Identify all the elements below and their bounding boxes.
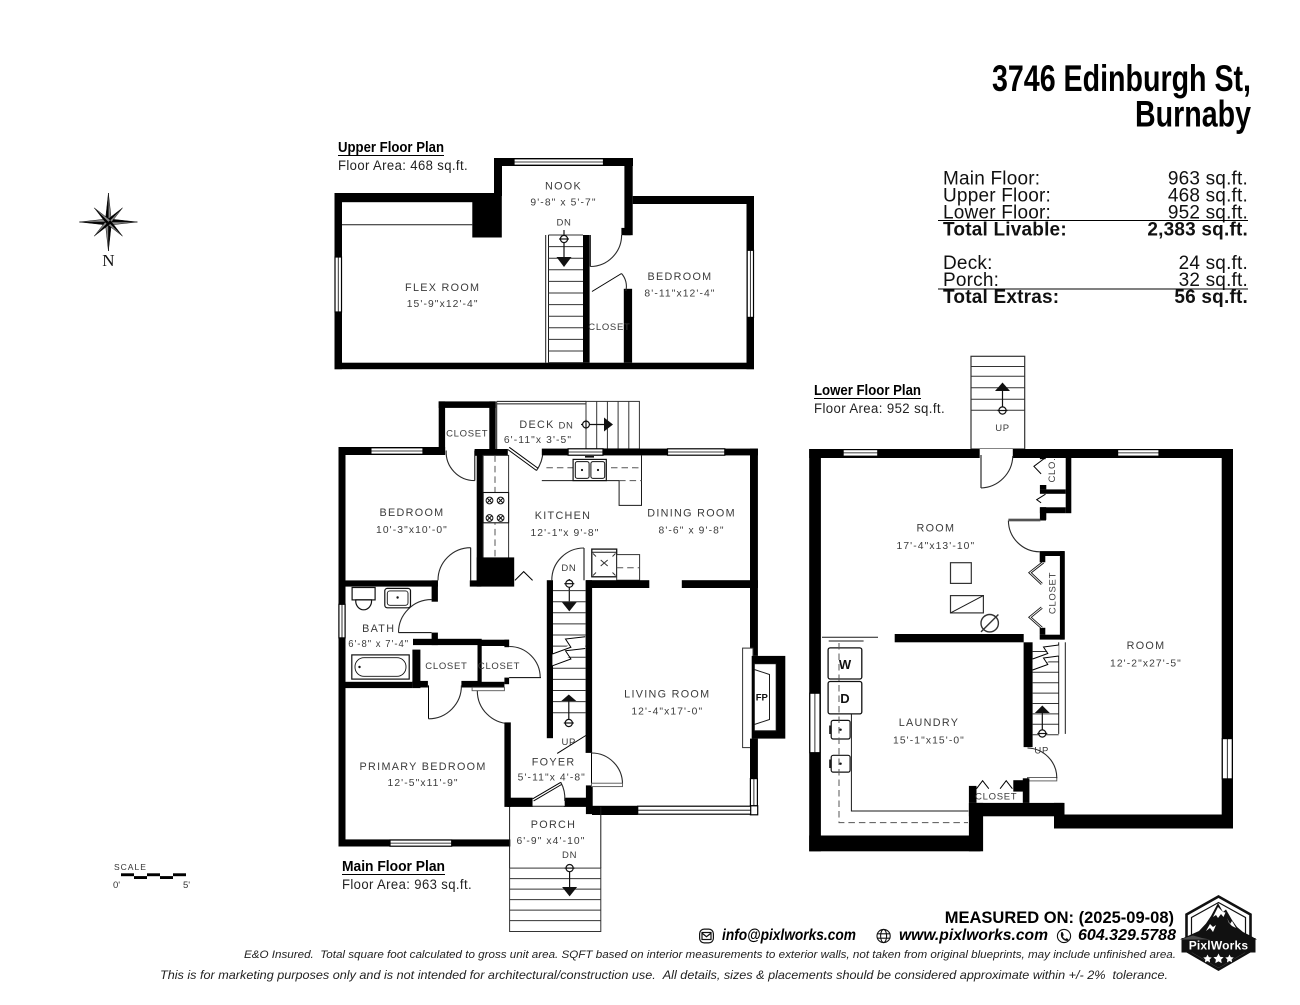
svg-text:Burnaby: Burnaby	[1135, 94, 1251, 135]
svg-text:UP: UP	[995, 423, 1010, 434]
svg-text:Lower Floor Plan: Lower Floor Plan	[814, 382, 921, 399]
svg-text:6'-11"x 3'-5": 6'-11"x 3'-5"	[504, 435, 572, 446]
svg-text:12'-4"x17'-0": 12'-4"x17'-0"	[631, 707, 703, 718]
svg-text:CLO.: CLO.	[1047, 458, 1058, 483]
svg-text:www.pixlworks.com: www.pixlworks.com	[899, 927, 1048, 944]
svg-text:SCALE: SCALE	[114, 862, 147, 872]
svg-text:Floor Area: 963 sq.ft.: Floor Area: 963 sq.ft.	[342, 877, 472, 892]
svg-text:Upper Floor Plan: Upper Floor Plan	[338, 139, 444, 156]
svg-text:BEDROOM: BEDROOM	[380, 507, 445, 519]
svg-text:FOYER: FOYER	[532, 757, 576, 769]
svg-text:12'-5"x11'-9": 12'-5"x11'-9"	[388, 778, 459, 789]
svg-text:8'-11"x12'-4": 8'-11"x12'-4"	[644, 289, 715, 300]
svg-text:604.329.5788: 604.329.5788	[1078, 927, 1176, 944]
svg-text:CLOSET: CLOSET	[1048, 572, 1059, 614]
svg-text:0': 0'	[113, 880, 120, 891]
svg-text:LIVING ROOM: LIVING ROOM	[624, 689, 710, 701]
svg-text:info@pixlworks.com: info@pixlworks.com	[722, 927, 856, 944]
svg-text:BATH: BATH	[362, 623, 395, 635]
svg-text:D: D	[840, 691, 849, 706]
svg-text:6'-9" x4'-10": 6'-9" x4'-10"	[516, 836, 585, 847]
svg-text:Total Extras:: Total Extras:	[943, 287, 1059, 308]
svg-text:Floor Area: 468 sq.ft.: Floor Area: 468 sq.ft.	[338, 158, 468, 173]
svg-text:ROOM: ROOM	[917, 523, 956, 535]
svg-text:DN: DN	[562, 850, 577, 861]
svg-text:Floor Area: 952 sq.ft.: Floor Area: 952 sq.ft.	[814, 401, 945, 416]
svg-text:10'-3"x10'-0": 10'-3"x10'-0"	[376, 525, 448, 536]
svg-text:ROOM: ROOM	[1127, 640, 1166, 652]
svg-text:NOOK: NOOK	[545, 181, 582, 193]
svg-text:15'-1"x15'-0": 15'-1"x15'-0"	[893, 736, 965, 747]
svg-text:8'-6" x 9'-8": 8'-6" x 9'-8"	[659, 526, 725, 537]
svg-text:KITCHEN: KITCHEN	[535, 510, 592, 522]
svg-text:6'-8" x 7'-4": 6'-8" x 7'-4"	[348, 639, 409, 650]
svg-text:BEDROOM: BEDROOM	[648, 271, 713, 283]
svg-text:FLEX ROOM: FLEX ROOM	[405, 282, 480, 294]
svg-text:CLOSET: CLOSET	[425, 661, 467, 672]
svg-text:UP: UP	[1034, 746, 1049, 757]
svg-text:Total Livable:: Total Livable:	[943, 220, 1067, 241]
svg-text:12'-1"x 9'-8": 12'-1"x 9'-8"	[530, 528, 599, 539]
svg-text:5'-11"x 4'-8": 5'-11"x 4'-8"	[518, 773, 586, 784]
svg-text:PixlWorks: PixlWorks	[1189, 939, 1249, 953]
svg-text:FP: FP	[756, 693, 769, 704]
svg-text:W: W	[839, 657, 852, 672]
svg-text:CLOSET: CLOSET	[446, 429, 488, 440]
svg-text:PRIMARY BEDROOM: PRIMARY BEDROOM	[360, 761, 487, 773]
svg-text:5': 5'	[183, 880, 190, 891]
svg-text:DN: DN	[556, 218, 571, 229]
svg-text:E&O Insured. Total square foo: E&O Insured. Total square foot calculate…	[244, 949, 1176, 961]
svg-text:9'-8" x 5'-7": 9'-8" x 5'-7"	[530, 198, 596, 209]
svg-text:PORCH: PORCH	[531, 819, 577, 831]
svg-text:56 sq.ft.: 56 sq.ft.	[1174, 287, 1248, 308]
svg-text:CLOSET: CLOSET	[588, 322, 630, 333]
svg-text:N: N	[102, 251, 114, 270]
svg-text:Main Floor Plan: Main Floor Plan	[342, 858, 445, 875]
svg-text:CLOSET: CLOSET	[478, 661, 520, 672]
svg-text:2,383 sq.ft.: 2,383 sq.ft.	[1147, 220, 1248, 241]
svg-text:12'-2"x27'-5": 12'-2"x27'-5"	[1110, 659, 1182, 670]
svg-text:DINING ROOM: DINING ROOM	[647, 508, 736, 520]
svg-text:DECK: DECK	[519, 419, 554, 431]
svg-text:MEASURED ON: (2025-09-08): MEASURED ON: (2025-09-08)	[945, 909, 1174, 927]
svg-text:17'-4"x13'-10": 17'-4"x13'-10"	[897, 541, 976, 552]
svg-text:DN: DN	[561, 563, 576, 574]
svg-text:CLOSET: CLOSET	[975, 792, 1017, 803]
svg-text:This is for marketing purposes: This is for marketing purposes only and …	[160, 968, 1168, 982]
svg-text:15'-9"x12'-4": 15'-9"x12'-4"	[407, 299, 479, 310]
svg-text:DN: DN	[558, 421, 573, 432]
svg-text:LAUNDRY: LAUNDRY	[899, 717, 960, 729]
